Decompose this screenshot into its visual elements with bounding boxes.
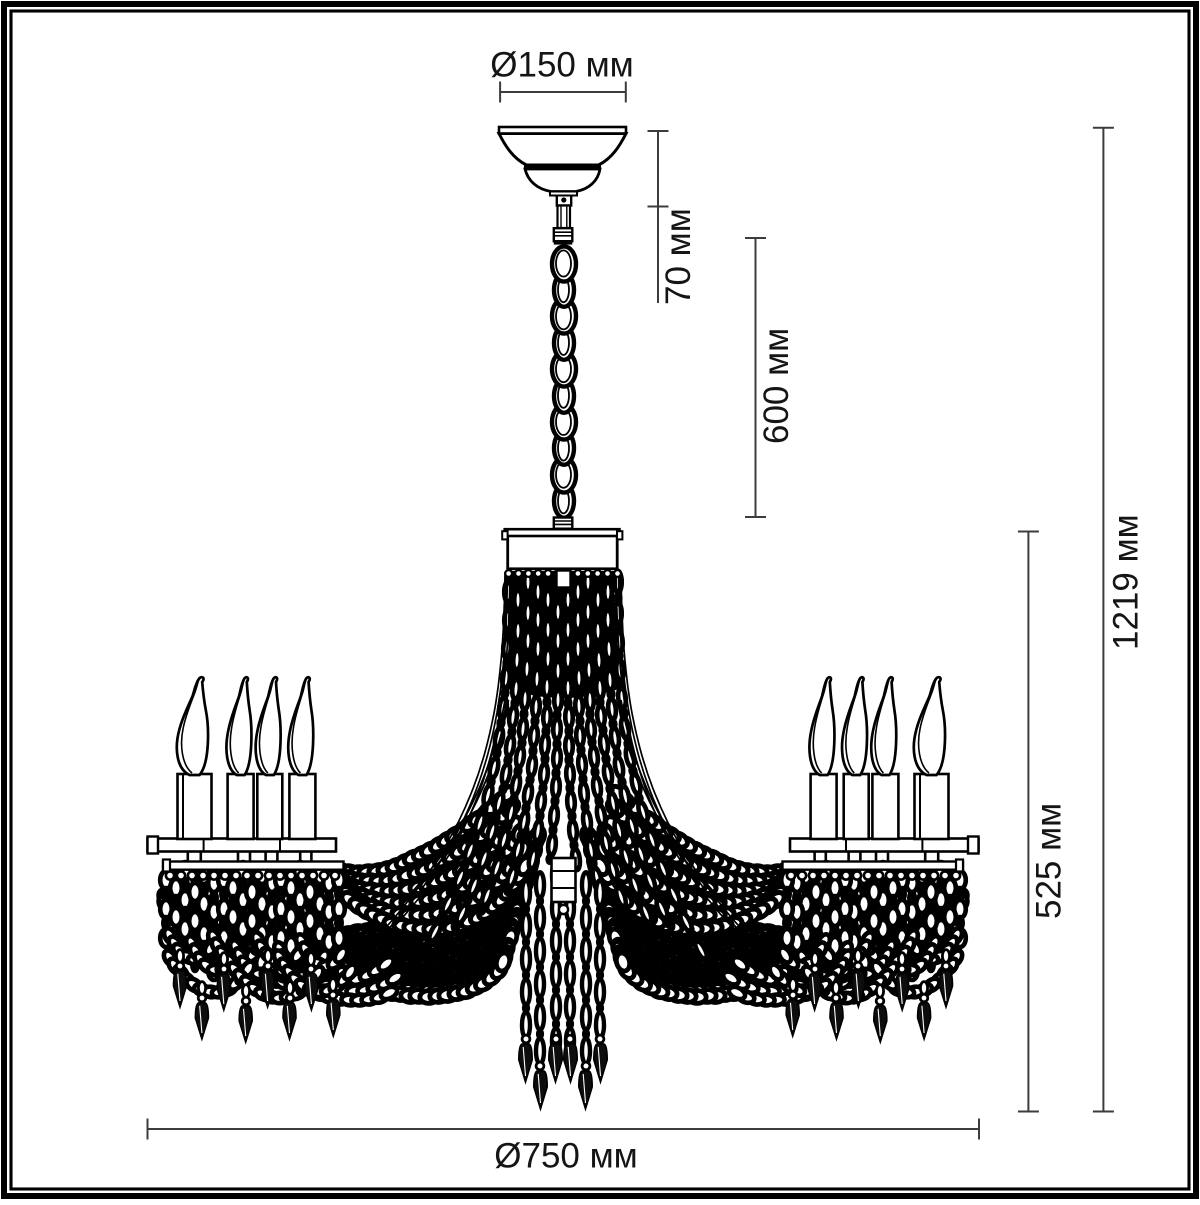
svg-text:Ø150 мм: Ø150 мм (490, 46, 633, 85)
svg-text:70 мм: 70 мм (659, 208, 698, 305)
svg-text:600 мм: 600 мм (757, 328, 796, 444)
svg-text:1219 мм: 1219 мм (1107, 514, 1146, 650)
svg-text:525 мм: 525 мм (1030, 803, 1069, 919)
svg-text:Ø750 мм: Ø750 мм (494, 1137, 637, 1176)
